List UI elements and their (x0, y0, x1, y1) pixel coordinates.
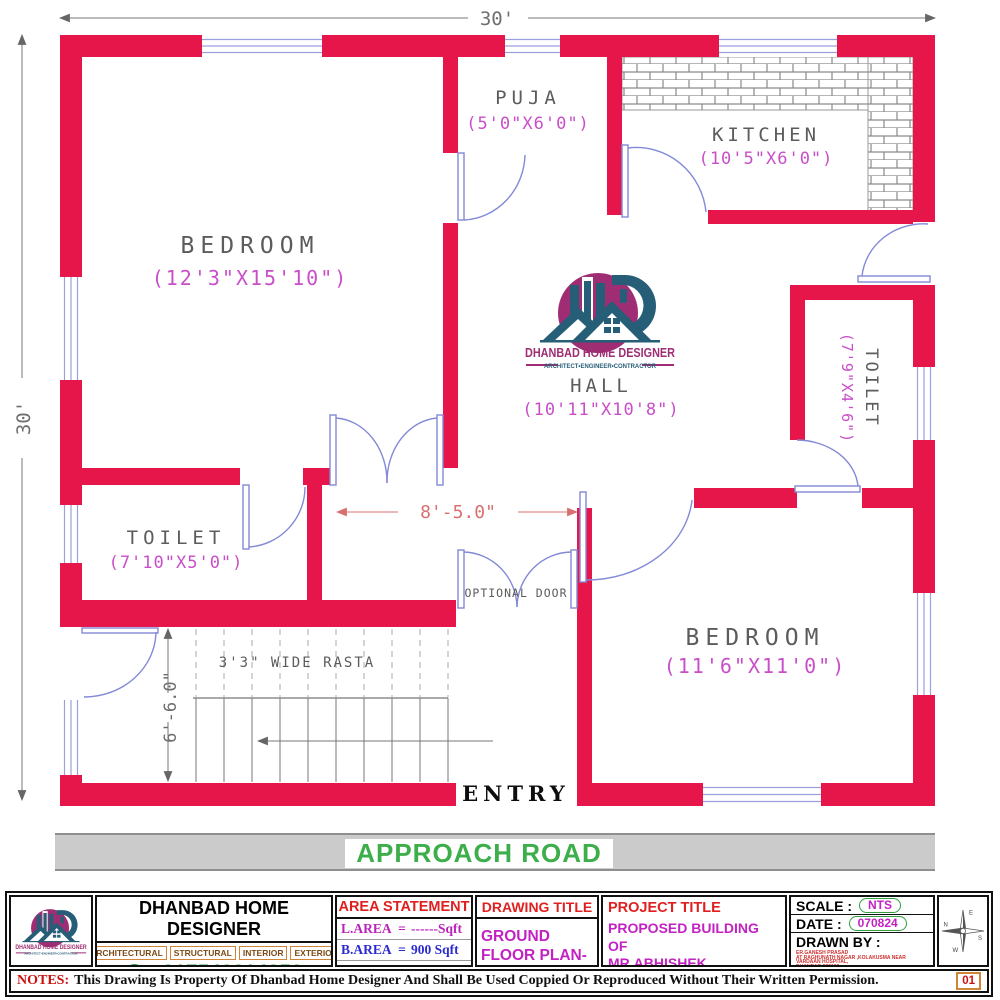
dimension-top: 30' (60, 8, 935, 30)
bedroom-br-size: (11'6"X11'0") (664, 654, 847, 678)
scale-row: SCALE : NTS (791, 897, 933, 915)
kitchen-name: KITCHEN (712, 124, 820, 146)
tag-interior: INTERIOR (239, 946, 288, 960)
sheet-number: 01 (956, 972, 981, 990)
area-row-l-label: L.AREA (341, 921, 393, 937)
compass-w: W (953, 948, 959, 954)
date-label: DATE : (796, 916, 842, 932)
compass-rose-icon: E N S W (939, 902, 987, 960)
date-row: DATE : 070824 (791, 915, 933, 933)
company-tags: ARCHITECTURAL STRUCTURAL INTERIOR EXTERI… (97, 943, 331, 962)
compass-s: S (978, 936, 982, 942)
rasta-side-door (82, 628, 158, 697)
drawn-by-line-3: DHANBAD 828109 (791, 965, 933, 967)
scale-label: SCALE : (796, 898, 852, 914)
drawing-title-value: GROUND FLOOR PLAN-3 (477, 919, 597, 967)
title-block-logo (13, 903, 89, 959)
compass-e: E (969, 911, 973, 917)
area-row-b-value: 900 Sqft (411, 942, 459, 958)
toilet-right-size: (7'9"X4'6") (838, 333, 856, 443)
area-statement-title: AREA STATEMENT (337, 897, 471, 919)
area-row-l-value: ------Sqft (411, 921, 462, 937)
title-block: DHANBAD HOME DESIGNER ARCHITECTURAL STRU… (5, 891, 993, 997)
area-row-t-eq: = (393, 963, 411, 967)
dim-hall-label: 8'-5.0" (420, 502, 496, 523)
kitchen-size: (10'5"X6'0") (699, 149, 834, 169)
approach-road-label: APPROACH ROAD (356, 838, 602, 869)
notes-row: NOTES: This Drawing Is Property Of Dhanb… (9, 969, 989, 993)
whatsapp-icon (125, 964, 144, 968)
floor-plan-sheet: DHANBAD HOME DESIGNER ARCHITECT•ENGINEER… (0, 0, 1000, 1000)
hall-size: (10'11"X10'8") (522, 400, 679, 420)
compass-n: N (944, 923, 948, 929)
stairs: 3'3" WIDE RASTA (193, 629, 493, 782)
approach-road-box: APPROACH ROAD (345, 839, 613, 868)
puja-name: PUJA (495, 87, 561, 109)
tag-exterior: EXTERIOR (290, 946, 333, 960)
floor-plan-drawing: DHANBAD HOME DESIGNER ARCHITECT•ENGINEER… (0, 0, 1000, 830)
rasta-label: 3'3" WIDE RASTA (219, 655, 375, 671)
toilet-right-door (795, 440, 860, 492)
company-cell: DHANBAD HOME DESIGNER ARCHITECTURAL STRU… (95, 895, 333, 967)
scale-value: NTS (859, 898, 901, 913)
dim-stairs-label: 6'-6.0" (161, 671, 181, 743)
title-block-logo-cell (9, 895, 93, 967)
company-phone: +917543814258 (150, 962, 302, 967)
compass-cell: E N S W (937, 895, 989, 967)
drawn-by-label: DRAWN BY : (791, 933, 933, 951)
area-row-b-eq: = (393, 942, 411, 958)
bedroom-tl-double-door (330, 415, 443, 485)
optional-door-label: OPTIONAL DOOR (464, 586, 567, 600)
toilet-left-name: TOILET (127, 527, 226, 549)
dimension-left: 30' (13, 35, 35, 800)
dim-left-label: 30' (13, 401, 35, 435)
project-title-cell: PROJECT TITLE PROPOSED BUILDING OF MR.AB… (601, 895, 787, 967)
hall-name: HALL (570, 375, 632, 397)
area-row-t-label: T.AREA (341, 963, 393, 967)
area-row-b: B.AREA = 900 Sqft (337, 940, 471, 961)
bedroom-tl-size: (12'3"X15'10") (152, 266, 349, 290)
area-statement-cell: AREA STATEMENT L.AREA = ------Sqft B.ARE… (335, 895, 473, 967)
puja-size: (5'0"X6'0") (466, 114, 590, 134)
entry-label: ENTRY (462, 781, 570, 806)
bedroom-br-name: BEDROOM (686, 625, 825, 651)
area-row-l: L.AREA = ------Sqft (337, 919, 471, 940)
area-row-l-eq: = (393, 921, 411, 937)
drawing-title-cell: DRAWING TITLE GROUND FLOOR PLAN-3 (475, 895, 599, 967)
bedroom-br-door (580, 492, 692, 582)
side-exterior-door (858, 224, 930, 282)
drawing-title-heading: DRAWING TITLE (477, 897, 597, 919)
date-value: 070824 (849, 916, 907, 931)
toilet-left-size: (7'10"X5'0") (109, 553, 244, 573)
bedroom-tl-name: BEDROOM (181, 233, 320, 259)
company-phone-row: +917543814258 (97, 962, 331, 967)
toilet-right-name: TOILET (861, 348, 881, 427)
kitchen-door (622, 145, 706, 217)
title-block-main-row: DHANBAD HOME DESIGNER ARCHITECTURAL STRU… (9, 895, 989, 967)
project-line-2: MR.ABHISHEK PARMANIK (603, 955, 785, 967)
project-line-1: PROPOSED BUILDING OF (603, 920, 785, 955)
notes-text: This Drawing Is Property Of Dhanbad Home… (74, 973, 878, 989)
company-name: DHANBAD HOME DESIGNER (97, 897, 331, 943)
tag-structural: STRUCTURAL (170, 946, 236, 960)
puja-door (458, 153, 525, 220)
dim-top-label: 30' (480, 8, 514, 30)
meta-cell: SCALE : NTS DATE : 070824 DRAWN BY : ER.… (789, 895, 935, 967)
area-row-t: T.AREA = 900 Sqft (337, 961, 471, 967)
notes-label: NOTES: (17, 973, 69, 989)
project-title-heading: PROJECT TITLE (603, 897, 785, 920)
dimension-hall: 8'-5.0" (337, 502, 577, 523)
area-row-t-value: 900 Sqft (411, 963, 459, 967)
dimension-stairs: 6'-6.0" (161, 629, 181, 781)
approach-road-band: APPROACH ROAD (55, 833, 935, 871)
toilet-left-door (243, 485, 305, 549)
area-row-b-label: B.AREA (341, 942, 393, 958)
tag-architectural: ARCHITECTURAL (95, 946, 167, 960)
